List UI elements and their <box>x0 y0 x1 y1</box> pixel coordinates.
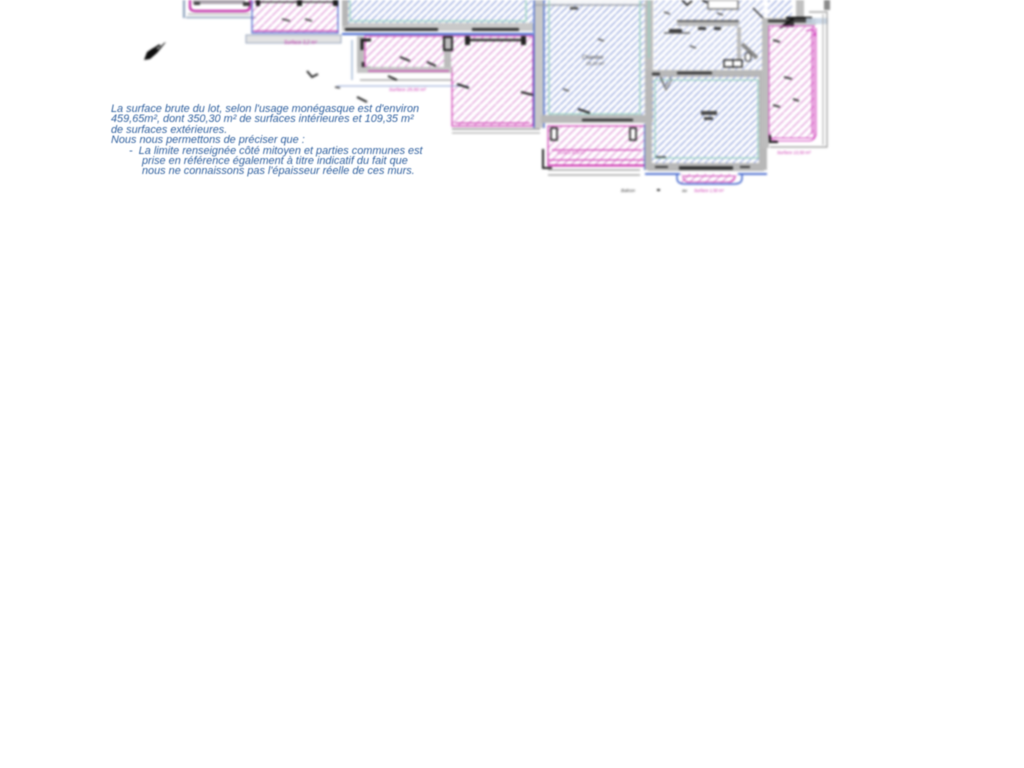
svg-text:Surface 29,90 m²: Surface 29,90 m² <box>389 87 426 93</box>
svg-text:Surface 1,50 m²: Surface 1,50 m² <box>694 188 724 193</box>
svg-text:15,20 m²: 15,20 m² <box>586 61 605 66</box>
svg-text:au: au <box>682 188 688 193</box>
svg-text:Balcon: Balcon <box>621 188 635 193</box>
svg-text:Surface 3,2 m²: Surface 3,2 m² <box>284 40 317 46</box>
svg-text:Surface 9,85 m²: Surface 9,85 m² <box>557 150 586 155</box>
svg-text:Surface 13,50 m²: Surface 13,50 m² <box>777 150 811 155</box>
